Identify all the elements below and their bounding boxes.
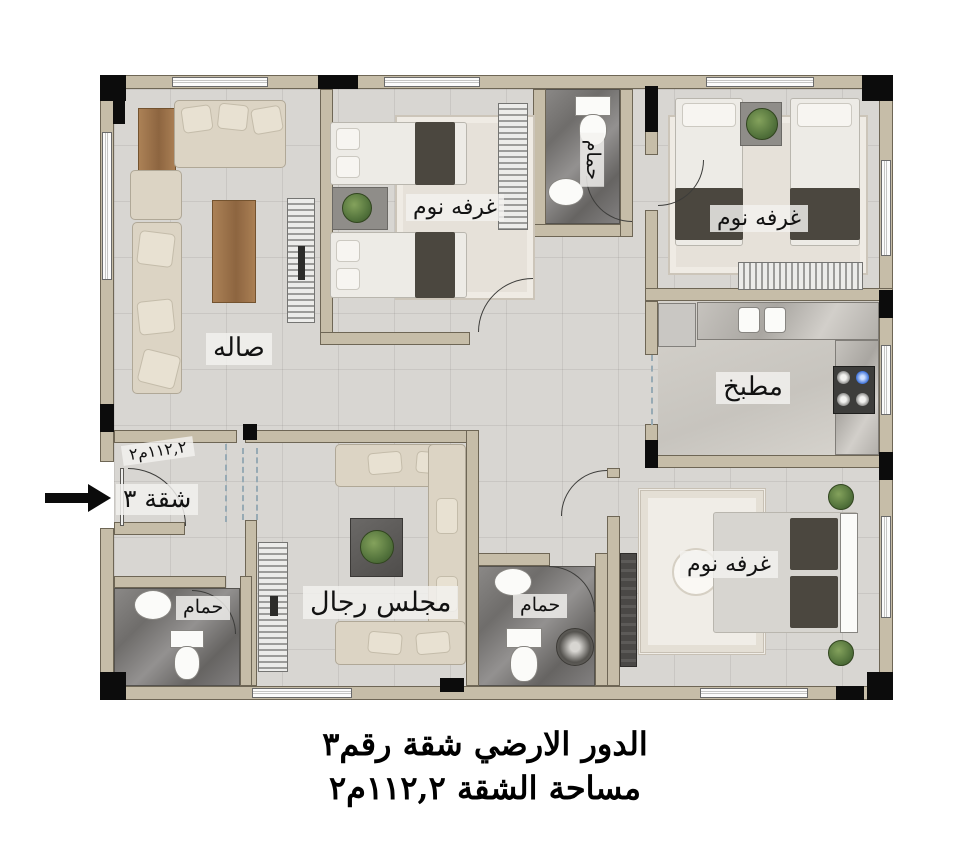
room-label-bathroom: حمام (513, 594, 567, 618)
cushion (136, 298, 175, 336)
burner (837, 393, 850, 406)
cushion (367, 451, 403, 476)
wall-kitchen-left-a (645, 301, 658, 355)
pillow (336, 268, 360, 290)
dresser (738, 262, 863, 290)
toilet-tank (506, 628, 542, 648)
window (172, 77, 268, 87)
column (862, 75, 893, 101)
wall-bath-left-right (240, 576, 252, 686)
caption-line2: مساحة الشقة ١١٢,٢م٢ (0, 766, 970, 810)
room-label-bedroom: غرفه نوم (406, 194, 504, 221)
entrance-arrow-head (88, 484, 111, 512)
column (113, 89, 125, 124)
tv-screen (298, 246, 305, 280)
pillow (336, 128, 360, 150)
wall-bath-center-top (478, 553, 550, 566)
cushion (180, 104, 213, 134)
room-label-living: صاله (206, 333, 272, 365)
wall-bath-left-top (114, 576, 226, 588)
plant (360, 530, 394, 564)
column (243, 424, 257, 440)
column (100, 404, 114, 432)
column (318, 75, 358, 89)
column (879, 290, 893, 318)
pillow-dark (790, 576, 838, 628)
coffee-table (212, 200, 256, 303)
window (384, 77, 480, 87)
floor-plan-page: صاله غرفه نوم غرفه نوم غرفه نوم حمام حما… (0, 0, 970, 862)
wardrobe (620, 553, 637, 667)
opening-dashed (242, 448, 244, 520)
column (645, 86, 658, 132)
fridge (658, 303, 696, 347)
cushion (250, 105, 284, 136)
plant (342, 193, 372, 223)
kitchen-sink (764, 307, 786, 333)
wall-kitchen-bottom (645, 455, 893, 468)
column (879, 452, 893, 480)
wall-bedroom-br-left (607, 516, 620, 686)
burner (856, 393, 869, 406)
entrance-arrow (45, 493, 91, 503)
column (836, 686, 864, 700)
opening-dashed (651, 355, 653, 425)
window (700, 688, 808, 698)
blanket (415, 232, 455, 298)
toilet (174, 646, 200, 680)
cushion (217, 103, 250, 132)
column (645, 440, 658, 468)
room-label-bathroom: حمام (580, 133, 604, 187)
armchair (130, 170, 182, 220)
kitchen-counter (697, 302, 879, 340)
caption: الدور الارضي شقة رقم٣ مساحة الشقة ١١٢,٢م… (0, 722, 970, 810)
window (252, 688, 352, 698)
cushion (367, 631, 403, 656)
burner (837, 371, 850, 384)
kitchen-sink (738, 307, 760, 333)
toilet-tank (575, 96, 611, 116)
opening-dashed (256, 448, 258, 520)
sink (494, 568, 532, 596)
room-label-bedroom: غرفه نوم (710, 205, 808, 232)
wall-bath-center-right (595, 553, 608, 686)
room-label-bedroom: غرفه نوم (680, 551, 778, 578)
plant (828, 484, 854, 510)
room-label-bathroom: حمام (176, 596, 230, 620)
wall-bedroom-mid-bottom (320, 332, 470, 345)
cushion (415, 631, 451, 656)
plant (746, 108, 778, 140)
pillow (682, 103, 736, 127)
window (881, 345, 891, 415)
wall-bath-top-bottom (533, 224, 633, 237)
window (881, 516, 891, 618)
shower-drain (556, 628, 594, 666)
pillow (336, 156, 360, 178)
pillow (797, 103, 852, 127)
window (102, 132, 112, 280)
window (881, 160, 891, 256)
room-label-kitchen: مطبخ (716, 372, 790, 404)
headboard (840, 513, 858, 633)
sink (548, 178, 584, 206)
pillow-dark (790, 518, 838, 570)
window (706, 77, 814, 87)
pillow (336, 240, 360, 262)
plant (828, 640, 854, 666)
column (440, 678, 464, 692)
sink (134, 590, 172, 620)
tv-screen (270, 596, 278, 616)
room-label-majlis: مجلس رجال (303, 586, 458, 619)
column (867, 672, 893, 700)
cushion (436, 498, 458, 534)
toilet (510, 646, 538, 682)
cushion (136, 230, 176, 268)
burner (856, 371, 869, 384)
apartment-number-label: شقة ٣ (116, 484, 198, 515)
wall-bedroom-br-left-stub (607, 468, 620, 478)
column (100, 672, 126, 700)
wall-bedroom-right-left-b (645, 210, 658, 300)
blanket (415, 122, 455, 185)
opening-dashed (225, 444, 227, 522)
wall-majlis-top (245, 430, 478, 443)
caption-line1: الدور الارضي شقة رقم٣ (0, 722, 970, 766)
